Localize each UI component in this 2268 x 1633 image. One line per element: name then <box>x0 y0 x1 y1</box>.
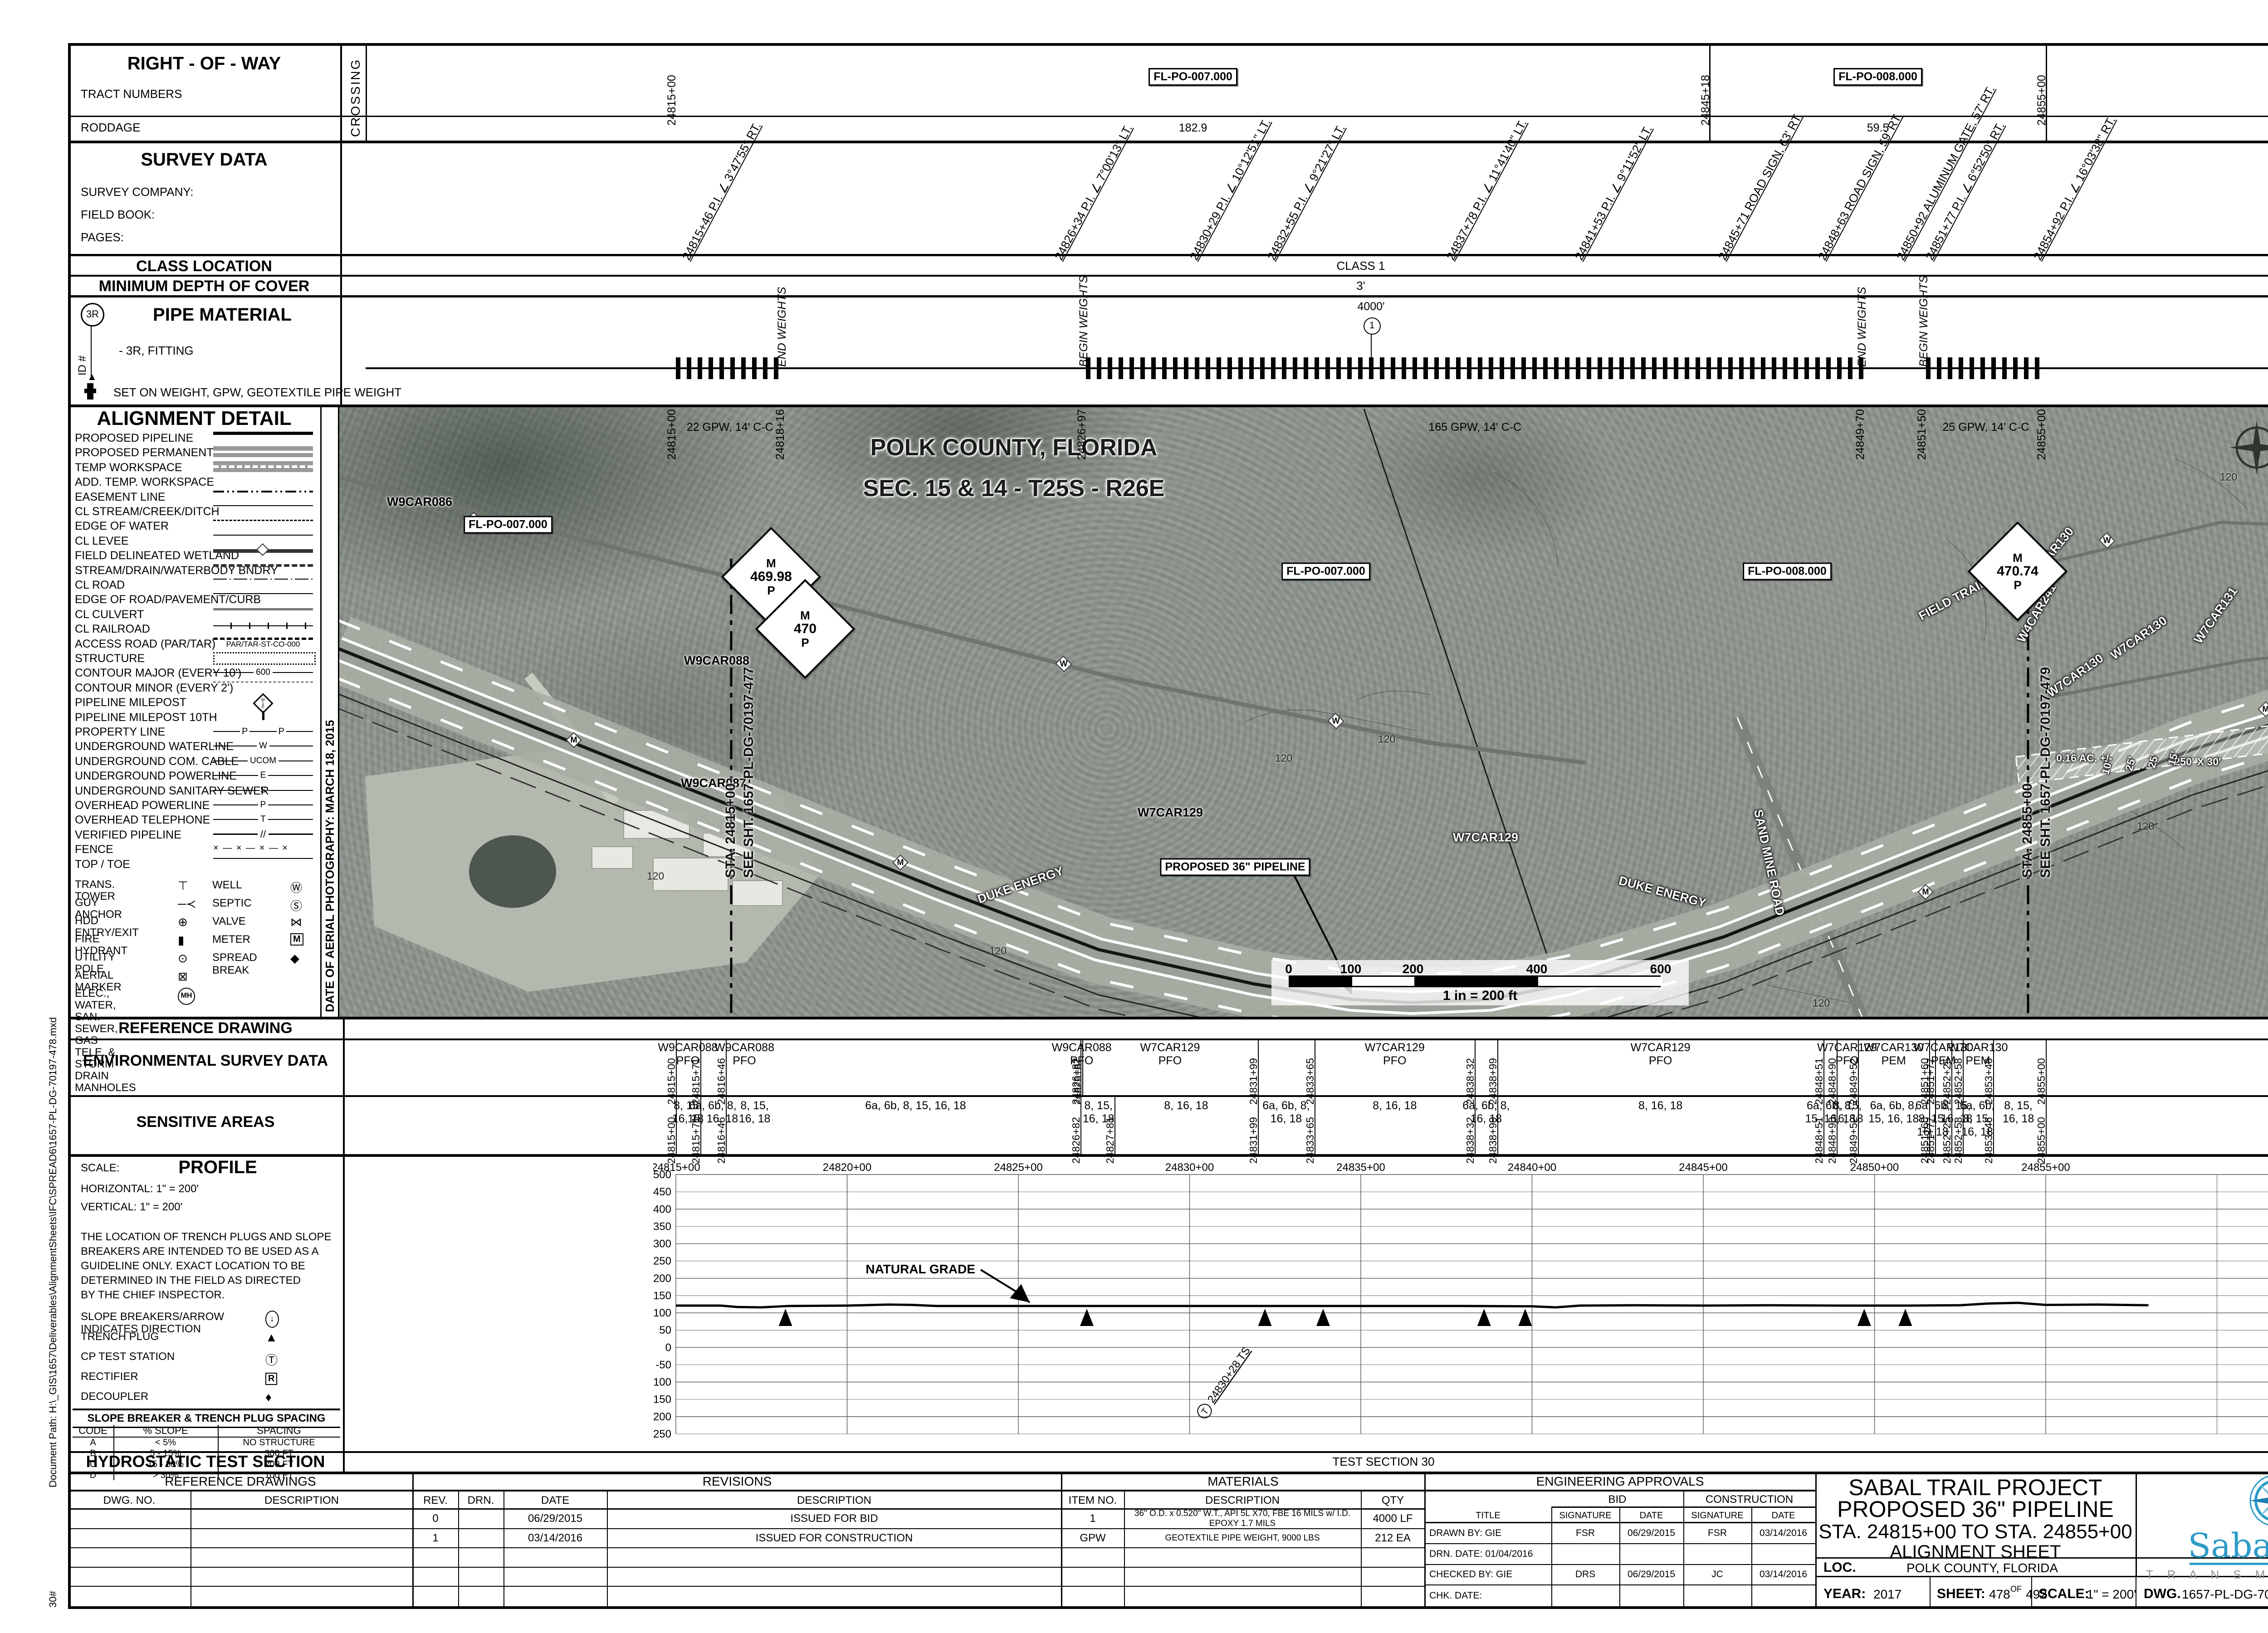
map-label: W7CAR129 <box>1453 831 1518 845</box>
pages-label: PAGES: <box>81 230 124 244</box>
svg-text:24830+28 TS: 24830+28 TS <box>1205 1345 1253 1405</box>
refdwg-cell <box>191 1548 413 1568</box>
approvals-header: DATE <box>1751 1508 1815 1523</box>
rule-line <box>343 1017 345 1472</box>
legend-swatch-thin <box>213 505 313 517</box>
sensitive-entry: 6a, 6b, 8, 16, 18 <box>1462 1099 1510 1126</box>
svg-text:24820+00: 24820+00 <box>823 1161 871 1174</box>
legend-item-label: VERIFIED PIPELINE <box>75 829 181 842</box>
legend-swatch-mp: M1P <box>213 696 313 708</box>
legend-item-label: TOP / TOE <box>75 858 130 871</box>
depth-cover-label: MINIMUM DEPTH OF COVER <box>68 278 340 295</box>
svg-text:24825+00: 24825+00 <box>994 1161 1042 1174</box>
survey-pi-call: 24832+55 P.I. ∠ 9°21'27" LT. <box>1265 122 1348 263</box>
rule-line <box>191 1492 191 1606</box>
refdwg-cell <box>68 1510 191 1529</box>
spacing-cell: < 5% <box>113 1438 218 1448</box>
materials-cell: GEOTEXTILE PIPE WEIGHT, 9000 LBS <box>1124 1529 1361 1549</box>
rule-line <box>68 295 2268 297</box>
legend-item-label: OVERHEAD TELEPHONE <box>75 814 210 827</box>
pipe-weight-segment <box>1926 357 2046 379</box>
map-tract-box: FL-PO-008.000 <box>1743 563 1832 580</box>
legend-item-label: STRUCTURE <box>75 652 145 665</box>
legend-swatch-easement <box>213 491 313 502</box>
pipe-station-label: 24849+70 <box>1854 409 1867 460</box>
legend-swatch-letter: UCOM <box>213 755 313 767</box>
refdwg-cell <box>68 1587 191 1606</box>
map-label: 250' X 30' <box>2174 756 2221 768</box>
pipe-station-label: 24851+50 <box>1916 409 1929 460</box>
dwg-label: DWG. <box>2144 1586 2181 1602</box>
env-entry: W9CAR088 PFO <box>1052 1041 1112 1068</box>
right-of-way-title: RIGHT - OF - WAY <box>68 54 340 74</box>
profile-title: PROFILE <box>127 1157 308 1178</box>
aerial-map: WWWWWWMMMMMPOLK COUNTY, FLORIDASEC. 15 &… <box>338 405 2268 1017</box>
approvals-cell <box>1619 1544 1683 1565</box>
map-label: W7CAR129 <box>1138 806 1203 820</box>
map-scale-bar: 01002004006001 in = 200 ft <box>1271 960 1689 1005</box>
legend-swatch-rail <box>213 623 313 634</box>
legend-item-label: FENCE <box>75 843 113 856</box>
revisions-header: DESCRIPTION <box>607 1492 1061 1510</box>
materials-cell: 1 <box>1061 1510 1124 1529</box>
revisions-cell <box>458 1529 503 1549</box>
survey-pi-call: 24854+92 P.I. ∠ 16°03'38" RT. <box>2031 114 2119 263</box>
revisions-cell: 1 <box>413 1529 458 1549</box>
legend-item-label: PROPERTY LINE <box>75 726 165 739</box>
title-line3: STA. 24815+00 TO STA. 24855+00 <box>1815 1522 2136 1542</box>
legend-item-label: CL STREAM/CREEK/DITCH <box>75 505 220 518</box>
env-entry: W9CAR088 PFO <box>658 1041 718 1068</box>
legend-swatch-prop: PP <box>213 726 313 737</box>
sensitive-entry: 8, 15, 16, 18 <box>1083 1099 1114 1126</box>
spacing-cell: A <box>73 1438 113 1448</box>
rule-line <box>1751 1508 1752 1606</box>
refdwg-cell <box>191 1529 413 1549</box>
legend-item-label: TEMP WORKSPACE <box>75 461 182 474</box>
weight-marker: BEGIN WEIGHTS <box>1077 276 1090 367</box>
crossing-label: CROSSING <box>348 58 363 137</box>
svg-text:50: 50 <box>659 1324 671 1336</box>
approvals-header: SIGNATURE <box>1683 1508 1751 1523</box>
svg-text:24830+00: 24830+00 <box>1165 1161 1214 1174</box>
legend-symbol: ▮ <box>178 933 184 947</box>
legend-swatch-dash <box>213 520 313 531</box>
refdwg-header: DESCRIPTION <box>191 1492 413 1510</box>
revisions-cell <box>458 1510 503 1529</box>
rule-line <box>1361 1492 1362 1606</box>
hydrostatic-label: HYDROSTATIC TEST SECTION <box>68 1452 343 1471</box>
row-station-label: 24845+18 <box>1699 75 1712 126</box>
profile-symbol: ▲ <box>265 1331 278 1345</box>
legend-item-label: UNDERGROUND WATERLINE <box>75 740 234 753</box>
map-linework <box>338 405 2268 1017</box>
map-tract-box: FL-PO-007.000 <box>464 516 552 534</box>
revisions-cell <box>413 1568 458 1587</box>
map-label: W9CAR086 <box>387 495 452 509</box>
map-title: POLK COUNTY, FLORIDA <box>870 434 1158 461</box>
svg-text:NATURAL GRADE: NATURAL GRADE <box>865 1262 975 1276</box>
rule-line <box>338 405 339 1017</box>
roddage-value: 59.5 <box>1833 122 1923 135</box>
sensitive-entry: 8, 16, 18 <box>1373 1099 1417 1112</box>
svg-text:400: 400 <box>653 1203 671 1215</box>
approvals-cell <box>1751 1585 1815 1606</box>
sensitive-entry: 6a, 6b, 8, 15, 16, 18 <box>865 1099 966 1112</box>
approvals-cell: FSR <box>1551 1523 1619 1544</box>
weight-marker: END WEIGHTS <box>776 287 789 367</box>
profile-chart: 5005004504504004003503503003002502502002… <box>653 1159 2268 1449</box>
legend-item-label: CONTOUR MINOR (EVERY 2') <box>75 682 233 695</box>
rule-line <box>1371 335 1372 366</box>
row-station-label: 24855+00 <box>2035 75 2048 126</box>
legend-swatch-letter: E <box>213 770 313 781</box>
map-label: 120 <box>1275 752 1292 765</box>
compass-logo-icon <box>2248 1473 2268 1528</box>
svg-text:450: 450 <box>653 1186 671 1198</box>
sensitive-entry: 8, 16, 18 <box>1638 1099 1682 1112</box>
legend-item-label: PROPOSED PIPELINE <box>75 432 193 445</box>
rule-line <box>68 1606 2268 1609</box>
approvals-cell: JC <box>1683 1565 1751 1586</box>
approvals-construction: CONSTRUCTION <box>1683 1492 1815 1508</box>
revisions-cell <box>607 1568 1061 1587</box>
approvals-cell: DRN. DATE: 01/04/2016 <box>1425 1544 1551 1565</box>
legend-item-label: CL RAILROAD <box>75 623 150 636</box>
env-entry: W9CAR088 PFO <box>714 1041 774 1068</box>
map-label: 120 <box>2220 471 2237 483</box>
legend-symbol: ─≺ <box>178 897 196 911</box>
refdwg-cell <box>191 1510 413 1529</box>
legend-swatch-wetland <box>213 549 313 561</box>
legend-swatch-access: PAR/TAR-ST-CO-000 <box>213 638 313 649</box>
approvals-cell: 03/14/2016 <box>1751 1523 1815 1544</box>
svg-text:100: 100 <box>653 1307 671 1319</box>
rule-line <box>458 1492 459 1606</box>
document-path: Document Path: H:\_GIS\1657\Deliverables… <box>47 1017 59 1487</box>
sheet-no: 478 <box>1989 1587 2010 1602</box>
pipe-station-label: 24818+16 <box>774 409 787 460</box>
tract-numbers-label: TRACT NUMBERS <box>81 87 182 101</box>
scale-value: 1" = 200' <box>2087 1587 2136 1602</box>
sensitive-entry: 6a, 6b, 8, 15, 16, 18 <box>1868 1099 1919 1126</box>
hydrostatic-value: TEST SECTION 30 <box>1293 1455 1474 1469</box>
svg-text:0: 0 <box>665 1341 671 1354</box>
sabal-trail-logo: SabalTrail T R A N S M I S S I O NSM <box>2136 1472 2268 1576</box>
legend-swatch-verified: // <box>213 829 313 840</box>
rule-line <box>68 43 2268 46</box>
approvals-bid: BID <box>1551 1492 1683 1508</box>
legend-symbol-label: ELEC., WATER, SAN. SEWER, GAS TELE. & ST… <box>75 988 136 1094</box>
aerial-date-note: DATE OF AERIAL PHOTOGRAPHY: MARCH 18, 20… <box>323 720 337 1012</box>
legend-swatch-letter: T <box>213 814 313 825</box>
legend-symbol-label: SPREAD BREAK <box>212 951 257 977</box>
svg-text:300: 300 <box>653 1238 671 1250</box>
survey-data-title: SURVEY DATA <box>68 150 340 170</box>
reference-drawing-label: REFERENCE DRAWING <box>68 1019 343 1037</box>
legend-swatch-fence: × — × — × — × <box>213 843 313 855</box>
sensitive-title: SENSITIVE AREAS <box>68 1113 343 1131</box>
revisions-cell <box>413 1548 458 1568</box>
pipe-station-label: 24855+00 <box>2035 409 2048 460</box>
year-value: 2017 <box>1873 1587 1901 1602</box>
sensitive-station: 24826+82 <box>1070 1117 1082 1164</box>
profile-symbol: Ⓣ <box>265 1350 278 1368</box>
refdwg-cell <box>68 1568 191 1587</box>
revisions-cell: 06/29/2015 <box>503 1510 607 1529</box>
materials-cell <box>1361 1587 1425 1606</box>
legend-item-label: PIPELINE MILEPOST 10TH <box>75 711 217 724</box>
title-line4: ALIGNMENT SHEET <box>1815 1542 2136 1562</box>
legend-item-label: EASEMENT LINE <box>75 491 166 504</box>
legend-symbol: ⋈ <box>290 915 302 929</box>
legend-swatch-bolddash <box>213 564 313 576</box>
legend-symbol-label: METER <box>212 933 250 946</box>
pipe-station-label: 24815+00 <box>665 409 679 460</box>
depth-cover-value: 3' <box>1315 279 1406 293</box>
materials-cell <box>1061 1587 1124 1606</box>
rule-line <box>1124 1492 1125 1606</box>
profile-symbol: R <box>265 1370 277 1385</box>
legend-swatch-thin <box>213 858 313 870</box>
rule-line <box>68 275 2268 277</box>
approvals-cell: DRS <box>1551 1565 1619 1586</box>
weight-symbol-cross <box>84 389 96 393</box>
profile-symbol-label: DECOUPLER <box>81 1390 253 1403</box>
map-label: 120 <box>647 870 664 882</box>
legend-swatch-letter: W <box>213 740 313 752</box>
materials-cell: 212 EA <box>1361 1529 1425 1549</box>
refdwg-cell <box>191 1568 413 1587</box>
map-label: W9CAR088 <box>684 654 749 668</box>
approvals-cell: CHECKED BY: GIE <box>1425 1565 1551 1586</box>
materials-cell <box>1061 1568 1124 1587</box>
legend-symbol: Ⓦ <box>290 879 302 896</box>
weight-note: SET ON WEIGHT, GPW, GEOTEXTILE PIPE WEIG… <box>113 385 401 400</box>
approvals-cell: 06/29/2015 <box>1619 1523 1683 1544</box>
materials-cell <box>1361 1568 1425 1587</box>
legend-symbol: ⊕ <box>178 915 188 929</box>
materials-cell <box>1124 1548 1361 1568</box>
spacing-header: SPACING <box>218 1425 340 1437</box>
approvals-cell <box>1619 1585 1683 1606</box>
pipe-id-bubble: 3R <box>81 303 104 327</box>
dwg-value: 1657-PL-DG-70197-478 <box>2182 1587 2268 1602</box>
rule-line <box>1619 1508 1620 1606</box>
legend-item-label: CL ROAD <box>75 579 125 592</box>
approvals-cell: CHK. DATE: <box>1425 1585 1551 1606</box>
map-label: 120 <box>1378 733 1395 746</box>
map-subtitle: SEC. 15 & 14 - T25S - R26E <box>863 475 1165 502</box>
approvals-header: TITLE <box>1425 1508 1551 1523</box>
svg-text:24840+00: 24840+00 <box>1508 1161 1556 1174</box>
revisions-cell <box>503 1548 607 1568</box>
svg-text:-150: -150 <box>653 1394 671 1406</box>
logo-wordmark: SabalTrail <box>2136 1530 2268 1562</box>
rule-line <box>68 1154 2268 1157</box>
roddage-label: RODDAGE <box>81 121 140 135</box>
legend-symbol: MH <box>178 988 195 1005</box>
approvals-cell <box>1683 1544 1751 1565</box>
rule-line <box>340 43 342 405</box>
materials-cell <box>1124 1587 1361 1606</box>
approvals-cell <box>1751 1544 1815 1565</box>
title-line1: SABAL TRAIL PROJECT <box>1815 1477 2136 1497</box>
legend-symbol: M <box>290 933 303 946</box>
revisions-header: REV. <box>413 1492 458 1510</box>
sheet-of: OF <box>2010 1584 2022 1594</box>
materials-cell <box>1124 1568 1361 1587</box>
rule-line <box>68 1017 2268 1019</box>
legend-symbol: ⊙ <box>178 951 188 965</box>
pipe-id-line <box>91 326 92 376</box>
logo-sub: T R A N S M I S S I O NSM <box>2136 1568 2268 1582</box>
legend-item-label: UNDERGROUND POWERLINE <box>75 770 237 783</box>
spacing-header: CODE <box>73 1425 113 1437</box>
svg-text:24845+00: 24845+00 <box>1679 1161 1727 1174</box>
pipe-material-title: PIPE MATERIAL <box>127 305 318 325</box>
profile-scale-label: SCALE: <box>81 1162 119 1175</box>
legend-item-label: ADD. TEMP. WORKSPACE <box>75 476 214 489</box>
approvals-cell <box>1551 1544 1619 1565</box>
legend-swatch-atws <box>213 476 313 487</box>
map-label: 120 <box>2137 820 2154 833</box>
profile-symbol: ♦ <box>265 1390 272 1404</box>
loc-label: LOC. <box>1823 1560 1856 1575</box>
profile-symbol: ↓ <box>265 1311 279 1328</box>
refdwg-header: DWG. NO. <box>68 1492 191 1510</box>
rule-line <box>320 405 322 1017</box>
svg-text:250: 250 <box>653 1255 671 1267</box>
legend-swatch-dashthin <box>213 682 313 693</box>
loc-value: POLK COUNTY, FLORIDA <box>1869 1561 2096 1575</box>
rule-line <box>68 405 2268 407</box>
pipe-fitting-note: - 3R, FITTING <box>119 344 194 358</box>
legend-swatch-tick <box>213 711 313 723</box>
svg-text:200: 200 <box>653 1272 671 1285</box>
survey-pi-call: 24830+29 P.I. ∠ 10°12'51" LT. <box>1187 117 1274 263</box>
rule-line <box>68 1451 2268 1453</box>
field-book-label: FIELD BOOK: <box>81 208 155 222</box>
class-location-value: CLASS 1 <box>1315 259 1406 273</box>
svg-text:-250: -250 <box>653 1428 671 1440</box>
weight-marker: BEGIN WEIGHTS <box>1917 276 1931 367</box>
legend-symbol: ⊠ <box>178 970 188 984</box>
env-entry: W7CAR129 PFO <box>1140 1041 1200 1068</box>
pipe-item-bubble: 1 <box>1364 317 1381 335</box>
sensitive-station: 24855+00 <box>2035 1117 2048 1164</box>
year-label: YEAR: <box>1823 1586 1866 1602</box>
legend-swatch-perm <box>213 446 313 458</box>
legend-swatch-letter: P <box>213 799 313 811</box>
approvals-cell <box>1683 1585 1751 1606</box>
map-label: 120 <box>989 945 1007 957</box>
sensitive-entry: 8, 15, 16, 18 <box>739 1099 771 1126</box>
revisions-cell: 03/14/2016 <box>503 1529 607 1549</box>
materials-header: DESCRIPTION <box>1124 1492 1361 1510</box>
rule-line <box>607 1492 608 1606</box>
revisions-cell <box>503 1568 607 1587</box>
environmental-title: ENVIRONMENTAL SURVEY DATA <box>68 1052 343 1070</box>
rule-line <box>366 43 367 141</box>
legend-swatch-contour: 600 <box>213 667 313 678</box>
materials-cell: GPW <box>1061 1529 1124 1549</box>
revisions-cell: ISSUED FOR CONSTRUCTION <box>607 1529 1061 1549</box>
materials-header: ITEM NO. <box>1061 1492 1124 1510</box>
rule-line <box>68 43 71 1609</box>
legend-symbol-label: SEPTIC <box>212 897 252 910</box>
revisions-cell: ISSUED FOR BID <box>607 1510 1061 1529</box>
legend-item-label: ACCESS ROAD (PAR/TAR) <box>75 638 215 651</box>
sensitive-entry: 8, 16, 18 <box>1164 1099 1208 1112</box>
svg-text:-100: -100 <box>653 1376 671 1389</box>
approvals-cell: DRAWN BY: GIE <box>1425 1523 1551 1544</box>
legend-swatch-pipeline <box>213 432 313 444</box>
map-tract-box: FL-PO-007.000 <box>1281 563 1370 580</box>
legend-title: ALIGNMENT DETAIL <box>68 407 320 430</box>
refdwg-title: REFERENCE DRAWINGS <box>68 1472 413 1492</box>
roddage-value: 182.9 <box>1148 122 1238 135</box>
approvals-cell: 06/29/2015 <box>1619 1565 1683 1586</box>
weight-marker: END WEIGHTS <box>1856 287 1869 367</box>
approvals-cell: FSR <box>1683 1523 1751 1544</box>
rule-line <box>68 116 2268 117</box>
legend-item-label: CL LEVEE <box>75 535 129 548</box>
svg-text:-200: -200 <box>653 1411 671 1423</box>
materials-cell <box>1061 1548 1124 1568</box>
rule-line <box>68 141 2268 143</box>
profile-symbol-label: TRENCH PLUG <box>81 1331 253 1343</box>
approvals-cell: 03/14/2016 <box>1751 1565 1815 1586</box>
svg-text:-50: -50 <box>655 1359 671 1371</box>
svg-text:T: T <box>1200 1406 1211 1417</box>
profile-v-scale: VERTICAL: 1" = 200' <box>81 1201 182 1214</box>
rule-line <box>1683 1492 1684 1606</box>
sensitive-entry: 6a, 6b, 8, 16, 18 <box>1262 1099 1310 1126</box>
refdwg-cell <box>191 1587 413 1606</box>
pipeline-callout: PROPOSED 36" PIPELINE <box>1160 858 1310 876</box>
revisions-cell <box>413 1587 458 1606</box>
sensitive-entry: 8, 15, 16, 18 <box>1832 1099 1863 1126</box>
refdwg-cell <box>68 1529 191 1549</box>
approvals-title: ENGINEERING APPROVALS <box>1425 1472 1815 1492</box>
approvals-cell <box>1551 1585 1619 1606</box>
materials-cell: 4000 LF <box>1361 1510 1425 1529</box>
svg-text:24835+00: 24835+00 <box>1336 1161 1385 1174</box>
rule-line <box>68 1095 2268 1097</box>
rule-line <box>68 1038 2268 1040</box>
revisions-cell <box>458 1548 503 1568</box>
map-label: 120 <box>1813 997 1830 1009</box>
legend-symbol: ◆ <box>290 951 299 965</box>
env-entry: W7CAR129 PFO <box>1365 1041 1425 1068</box>
survey-pi-call: 24845+71 ROAD SIGN, 63' RT. <box>1715 110 1805 263</box>
spacing-header: % SLOPE <box>113 1425 218 1437</box>
row-station-label: 24815+00 <box>665 75 679 126</box>
legend-item-label: OVERHEAD POWERLINE <box>75 799 210 812</box>
corner-note: 30# <box>47 1591 59 1608</box>
revisions-cell: 0 <box>413 1510 458 1529</box>
pipe-id-arrow: ▲ <box>87 371 97 383</box>
alignment-sheet: RIGHT - OF - WAY TRACT NUMBERS RODDAGE C… <box>0 0 2268 1633</box>
revisions-cell <box>607 1587 1061 1606</box>
legend-item-label: CL CULVERT <box>75 608 144 621</box>
profile-symbol-label: CP TEST STATION <box>81 1350 253 1363</box>
class-location-label: CLASS LOCATION <box>68 258 340 275</box>
revisions-title: REVISIONS <box>413 1472 1061 1492</box>
title-line2: PROPOSED 36" PIPELINE <box>1815 1499 2136 1519</box>
survey-pi-call: 24837+78 P.I. ∠ 11°41'40" LT. <box>1444 117 1530 263</box>
